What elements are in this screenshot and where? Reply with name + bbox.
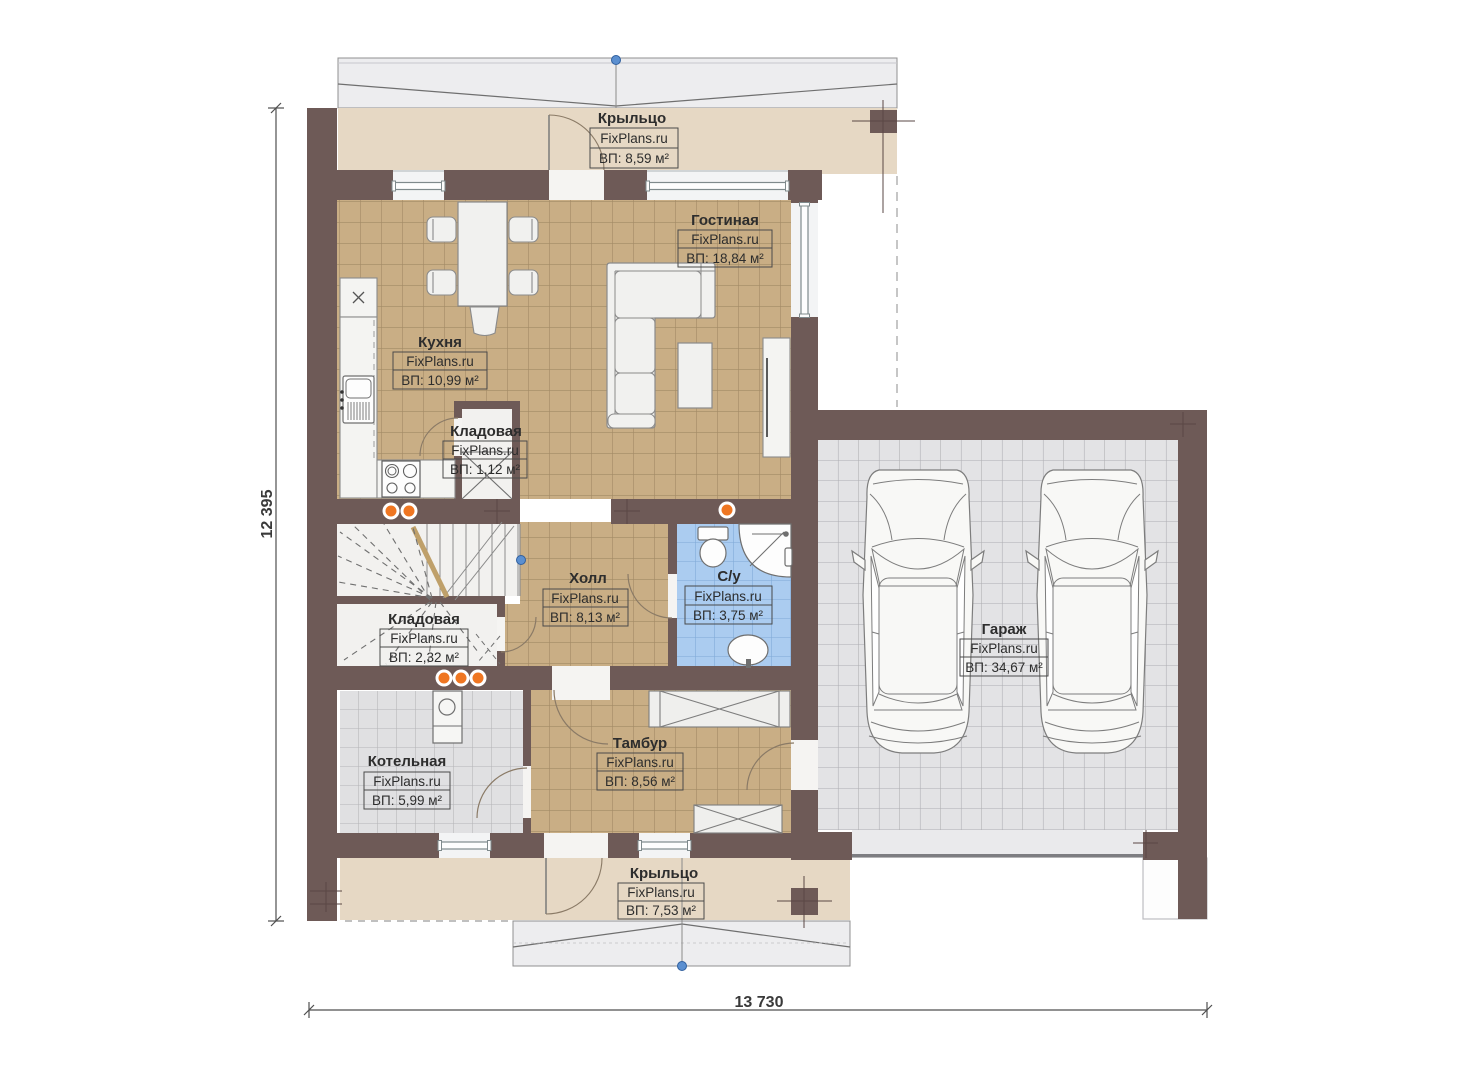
svg-text:ВП: 2,32 м²: ВП: 2,32 м² xyxy=(389,650,460,665)
svg-text:Крыльцо: Крыльцо xyxy=(630,865,698,882)
svg-text:Кладовая: Кладовая xyxy=(450,423,522,440)
svg-text:ВП: 1,12 м²: ВП: 1,12 м² xyxy=(450,462,521,477)
svg-text:Холл: Холл xyxy=(569,570,607,587)
svg-text:ВП: 7,53 м²: ВП: 7,53 м² xyxy=(626,903,697,918)
svg-text:Кухня: Кухня xyxy=(418,334,462,351)
svg-text:FixPlans.ru: FixPlans.ru xyxy=(390,631,458,646)
svg-text:FixPlans.ru: FixPlans.ru xyxy=(406,354,474,369)
svg-text:ВП: 34,67 м²: ВП: 34,67 м² xyxy=(965,660,1043,675)
svg-text:ВП: 18,84 м²: ВП: 18,84 м² xyxy=(686,251,764,266)
svg-text:ВП: 8,56 м²: ВП: 8,56 м² xyxy=(605,774,676,789)
svg-text:Тамбур: Тамбур xyxy=(613,735,667,752)
svg-text:FixPlans.ru: FixPlans.ru xyxy=(970,641,1038,656)
svg-text:13 730: 13 730 xyxy=(735,994,784,1011)
svg-text:FixPlans.ru: FixPlans.ru xyxy=(600,131,668,146)
svg-text:12 395: 12 395 xyxy=(259,489,276,538)
svg-text:Крыльцо: Крыльцо xyxy=(598,110,666,127)
svg-text:ВП: 8,59 м²: ВП: 8,59 м² xyxy=(599,151,670,166)
svg-text:С/у: С/у xyxy=(717,568,741,585)
svg-text:FixPlans.ru: FixPlans.ru xyxy=(627,885,695,900)
svg-text:FixPlans.ru: FixPlans.ru xyxy=(691,232,759,247)
svg-text:ВП: 5,99 м²: ВП: 5,99 м² xyxy=(372,793,443,808)
svg-text:FixPlans.ru: FixPlans.ru xyxy=(606,755,674,770)
svg-text:FixPlans.ru: FixPlans.ru xyxy=(451,443,519,458)
svg-text:FixPlans.ru: FixPlans.ru xyxy=(551,591,619,606)
svg-text:Гараж: Гараж xyxy=(982,621,1027,638)
svg-text:FixPlans.ru: FixPlans.ru xyxy=(373,774,441,789)
svg-text:ВП: 10,99 м²: ВП: 10,99 м² xyxy=(401,373,479,388)
svg-text:Кладовая: Кладовая xyxy=(388,611,460,628)
svg-text:Гостиная: Гостиная xyxy=(691,212,759,229)
svg-text:ВП: 8,13 м²: ВП: 8,13 м² xyxy=(550,610,621,625)
svg-text:Котельная: Котельная xyxy=(368,753,447,770)
svg-text:ВП: 3,75 м²: ВП: 3,75 м² xyxy=(693,608,764,623)
svg-text:FixPlans.ru: FixPlans.ru xyxy=(694,589,762,604)
